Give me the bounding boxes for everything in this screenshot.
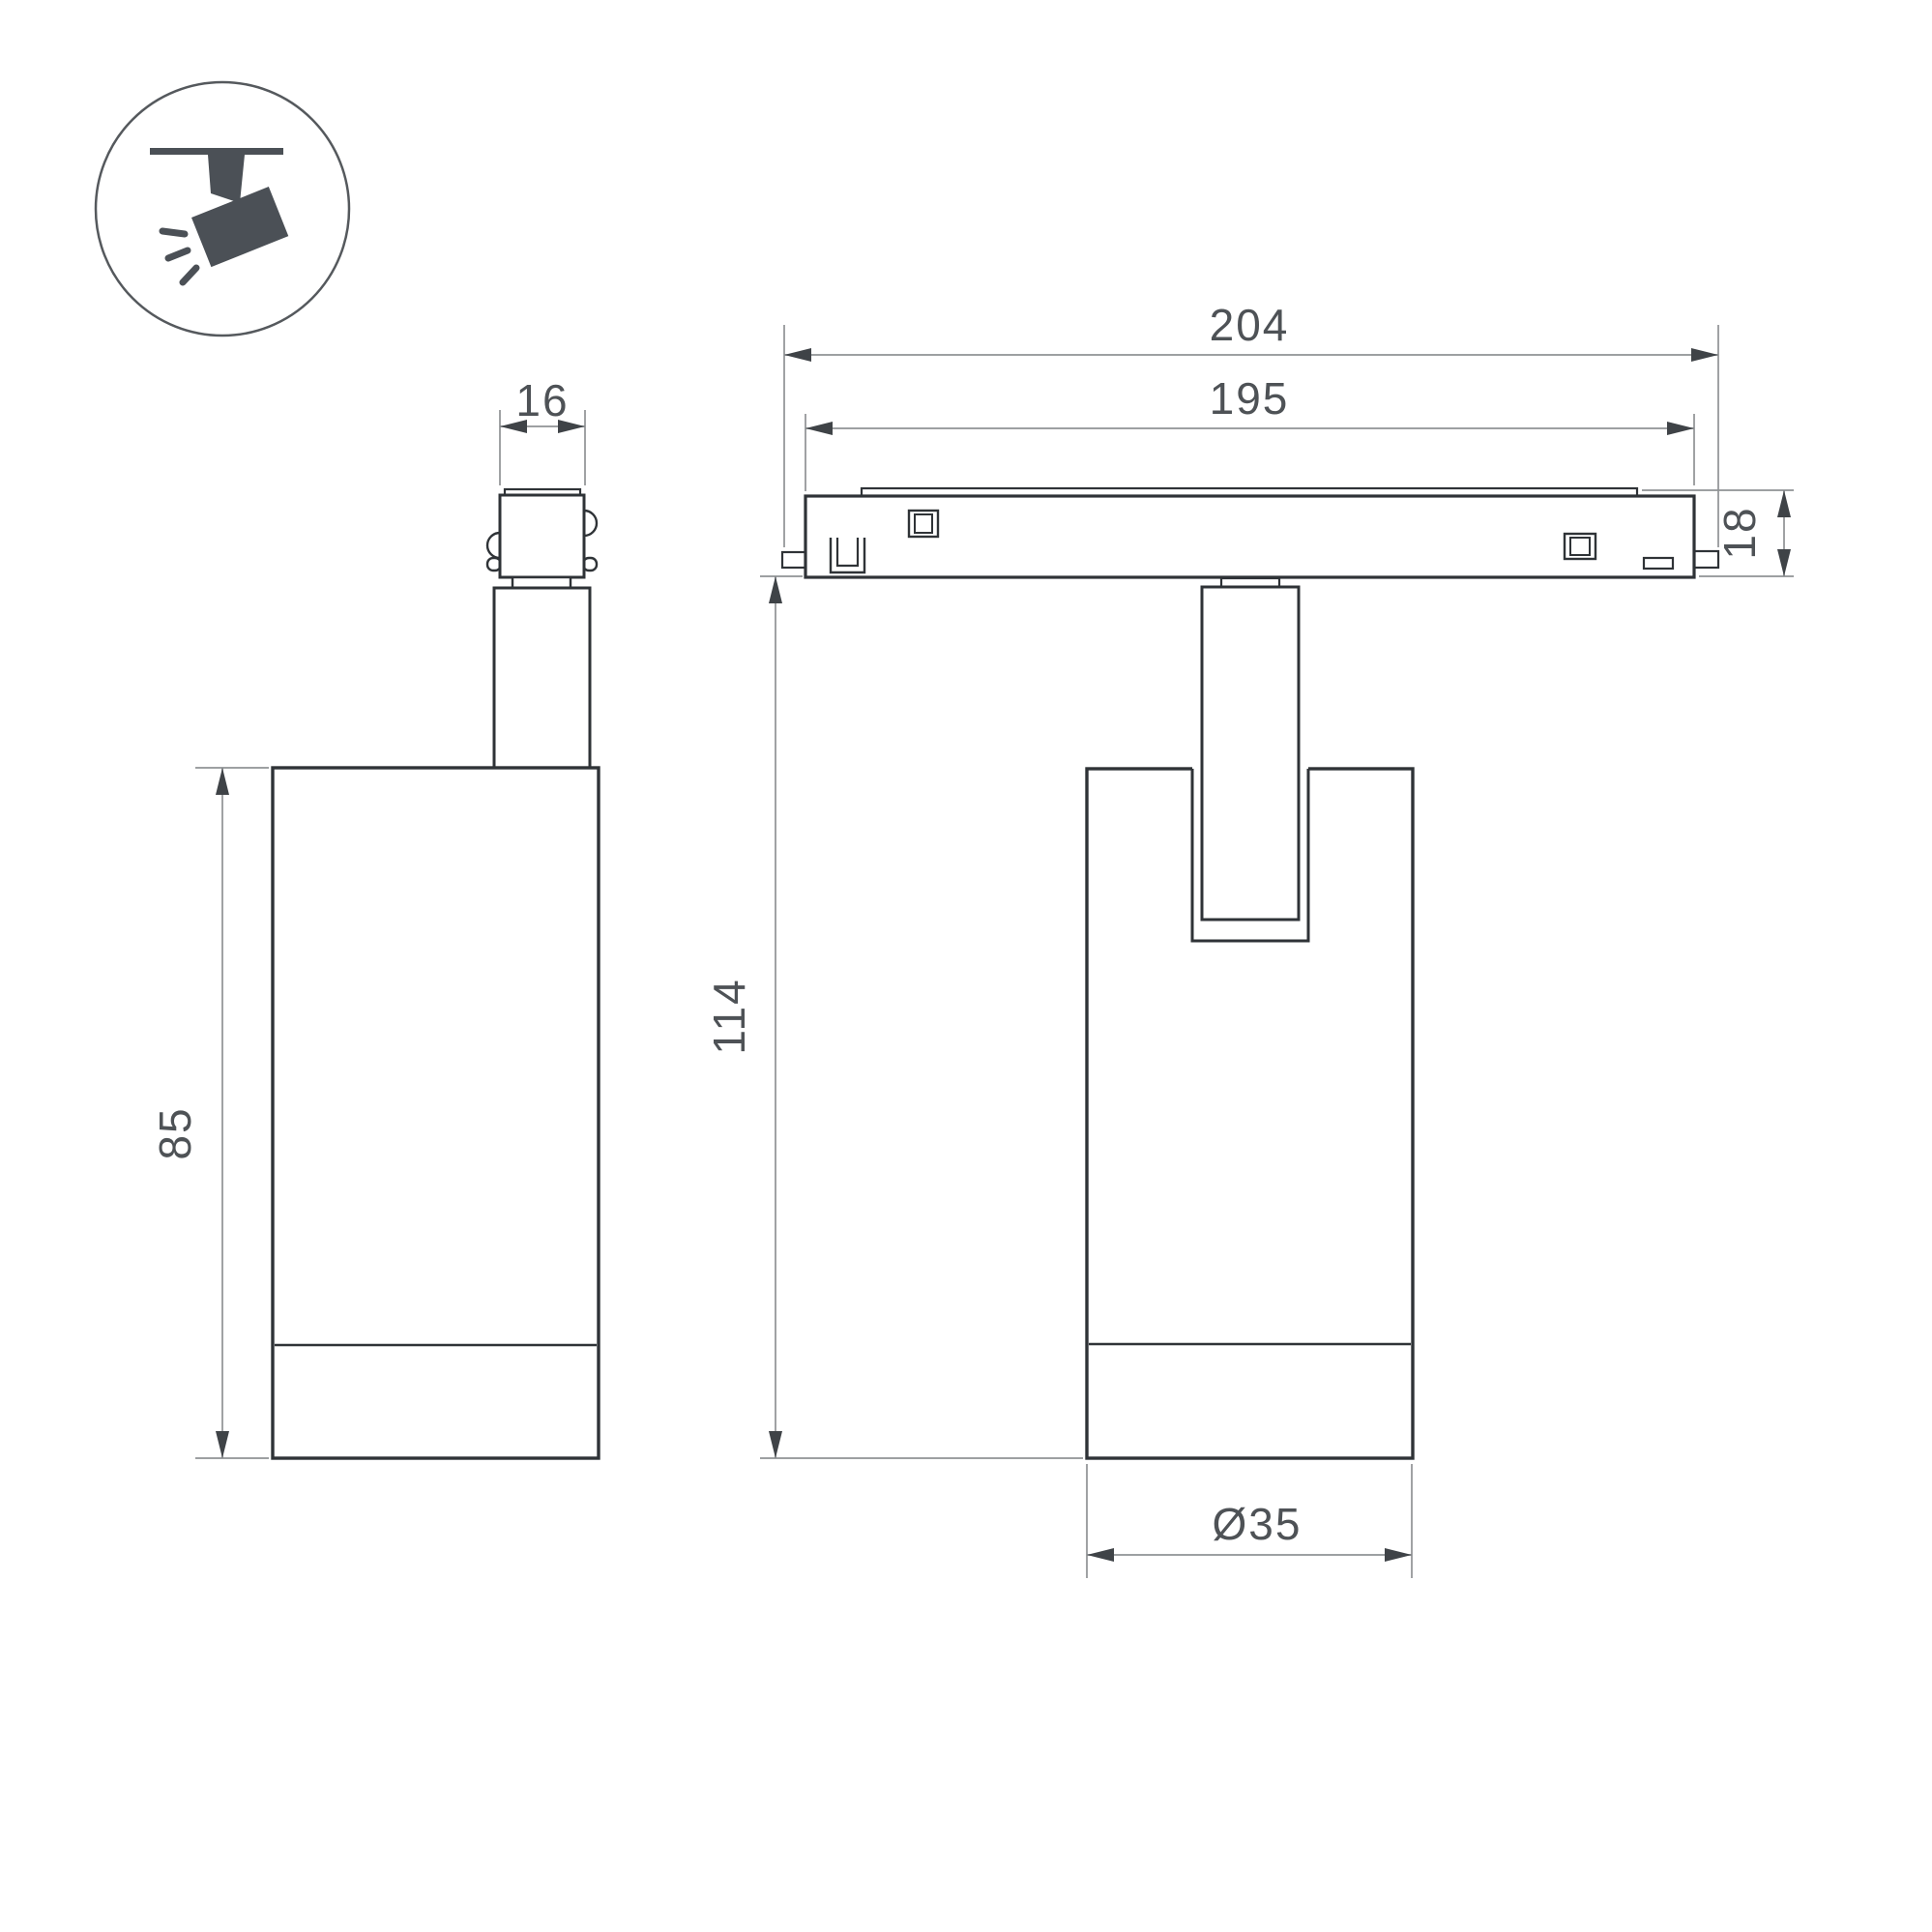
icon-track-bar	[150, 148, 283, 155]
dimension-d35: Ø35	[1087, 1464, 1412, 1578]
track-cutout-right-inner	[1570, 538, 1590, 555]
track-cutout-left-inner	[915, 514, 932, 533]
dim-label-base-total-length: 204	[1210, 300, 1290, 350]
dimension-114: 114	[704, 576, 1083, 1458]
dimension-85: 85	[150, 768, 269, 1458]
front-view-track	[782, 488, 1718, 587]
pivot-neck	[512, 577, 571, 588]
dimension-16: 16	[500, 375, 585, 485]
dim-label-overall-height: 114	[704, 978, 754, 1054]
dim-label-body-diameter: Ø35	[1213, 1499, 1303, 1549]
pivot-stem-front	[1202, 587, 1299, 920]
dimension-195: 195	[805, 373, 1694, 491]
dim-label-body-height: 85	[150, 1106, 200, 1159]
pivot-stem	[494, 588, 590, 769]
dim-label-base-body-length: 195	[1210, 373, 1290, 424]
track-spotlight-icon	[96, 82, 349, 336]
side-view	[273, 489, 599, 1458]
drawing-canvas: 16 85	[0, 0, 1932, 1932]
dim-label-base-height: 18	[1714, 506, 1765, 559]
track-end-tab-left	[782, 552, 805, 568]
front-view-lamp	[1087, 587, 1413, 1458]
dim-label-adapter-width: 16	[515, 375, 569, 425]
lamp-body-side	[273, 768, 599, 1458]
dimension-drawing: 16 85	[0, 0, 1932, 1932]
adapter-clip-arc-left	[487, 533, 500, 558]
track-adapter-end	[500, 495, 584, 577]
track-slot-right	[1644, 558, 1673, 569]
adapter-clip-arc-right	[584, 511, 597, 536]
